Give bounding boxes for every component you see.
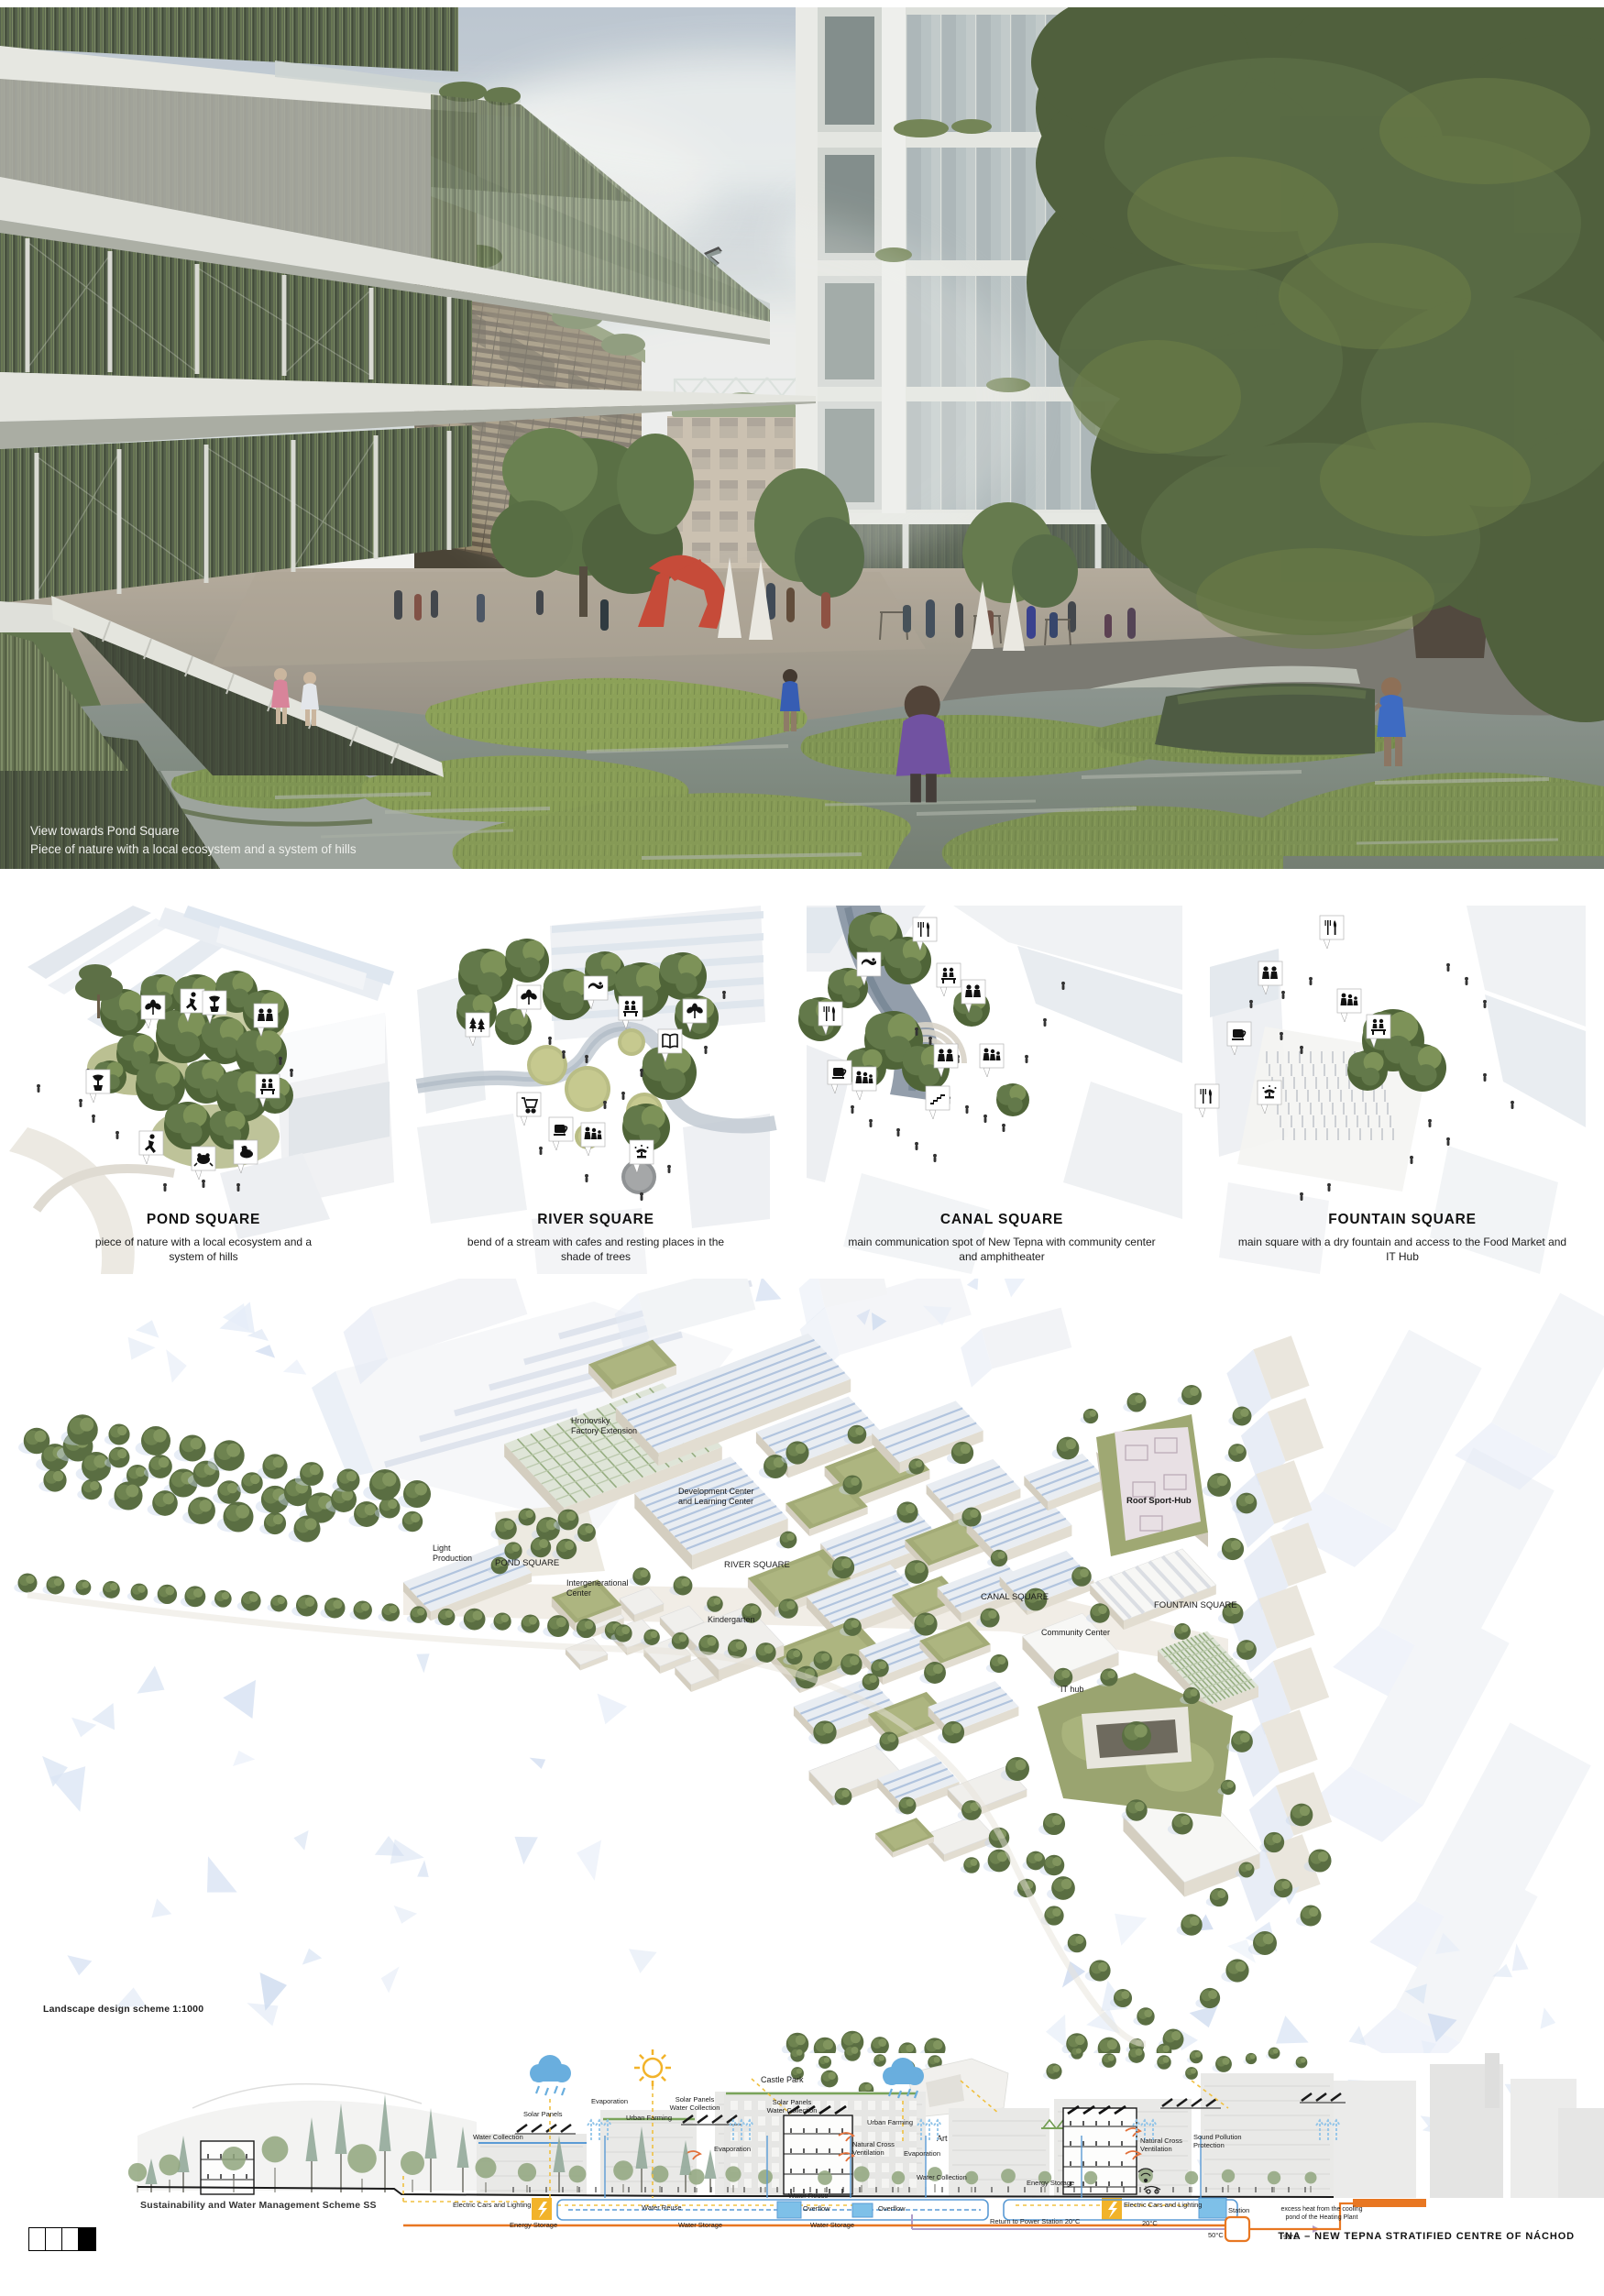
svg-text:Urban Farming: Urban Farming xyxy=(626,2114,672,2122)
svg-text:and Learning Center: and Learning Center xyxy=(678,1497,753,1506)
svg-text:Water Reuse: Water Reuse xyxy=(642,2203,682,2212)
svg-text:Solar Panels: Solar Panels xyxy=(676,2095,715,2104)
svg-text:Evaporation: Evaporation xyxy=(714,2145,751,2153)
svg-text:Natural Cross: Natural Cross xyxy=(852,2140,895,2148)
svg-text:Sound Pollution: Sound Pollution xyxy=(1193,2133,1242,2141)
svg-text:Water Collection: Water Collection xyxy=(767,2106,818,2115)
svg-text:Evaporation: Evaporation xyxy=(904,2149,940,2158)
svg-text:Solar Panels: Solar Panels xyxy=(773,2098,812,2106)
svg-text:Evaporation: Evaporation xyxy=(591,2097,628,2105)
svg-text:Overflow: Overflow xyxy=(878,2204,906,2213)
svg-text:CANAL SQUARE: CANAL SQUARE xyxy=(981,1592,1049,1602)
svg-text:Roof Sport-Hub: Roof Sport-Hub xyxy=(1126,1496,1192,1506)
svg-text:Energy Storage: Energy Storage xyxy=(1027,2179,1074,2187)
svg-text:Natural Cross: Natural Cross xyxy=(1140,2137,1182,2145)
svg-text:Water Collection: Water Collection xyxy=(670,2104,720,2112)
svg-text:Return to Power Station 20°C: Return to Power Station 20°C xyxy=(990,2217,1081,2225)
svg-text:Castle Park: Castle Park xyxy=(761,2075,804,2084)
svg-text:Station: Station xyxy=(1228,2206,1249,2214)
svg-text:Electric Cars and Lighting: Electric Cars and Lighting xyxy=(1124,2201,1202,2209)
svg-text:Kindergarten: Kindergarten xyxy=(708,1615,755,1624)
svg-text:Water Reuse: Water Reuse xyxy=(788,2192,829,2200)
svg-text:Production: Production xyxy=(433,1554,472,1563)
svg-text:Development Center: Development Center xyxy=(678,1487,754,1496)
svg-text:Water Storage: Water Storage xyxy=(678,2221,722,2229)
svg-text:IT hub: IT hub xyxy=(1060,1685,1083,1694)
svg-text:excess heat from the cooling: excess heat from the cooling xyxy=(1280,2206,1362,2213)
svg-text:50°C: 50°C xyxy=(1208,2231,1224,2239)
svg-text:Community Center: Community Center xyxy=(1041,1628,1110,1637)
svg-text:Overflow: Overflow xyxy=(803,2204,830,2213)
svg-text:Factory Extension: Factory Extension xyxy=(571,1426,637,1435)
svg-text:Urban Farming: Urban Farming xyxy=(867,2118,913,2126)
svg-text:Light: Light xyxy=(433,1543,451,1553)
svg-text:Hronovsky: Hronovsky xyxy=(571,1416,610,1425)
svg-text:pond of the Heating Plant: pond of the Heating Plant xyxy=(1285,2214,1357,2221)
svg-text:Protection: Protection xyxy=(1193,2141,1225,2149)
svg-text:FOUNTAIN SQUARE: FOUNTAIN SQUARE xyxy=(1154,1600,1237,1610)
svg-text:Water Storage: Water Storage xyxy=(810,2221,854,2229)
svg-text:Electric Cars and Lighting: Electric Cars and Lighting xyxy=(453,2201,531,2209)
svg-text:Ventilation: Ventilation xyxy=(852,2148,884,2157)
svg-text:Energy Storage: Energy Storage xyxy=(510,2221,557,2229)
svg-text:Solar Panels: Solar Panels xyxy=(523,2110,563,2118)
svg-text:RIVER SQUARE: RIVER SQUARE xyxy=(724,1560,790,1570)
svg-text:Ventilation: Ventilation xyxy=(1140,2145,1172,2153)
svg-text:Water Collection: Water Collection xyxy=(473,2133,523,2141)
svg-text:Intergenerational: Intergenerational xyxy=(566,1578,629,1587)
svg-text:POND SQUARE: POND SQUARE xyxy=(495,1558,559,1568)
svg-text:Water Collection: Water Collection xyxy=(917,2173,967,2181)
svg-text:Center: Center xyxy=(566,1588,591,1598)
svg-text:20°C: 20°C xyxy=(1142,2219,1158,2227)
